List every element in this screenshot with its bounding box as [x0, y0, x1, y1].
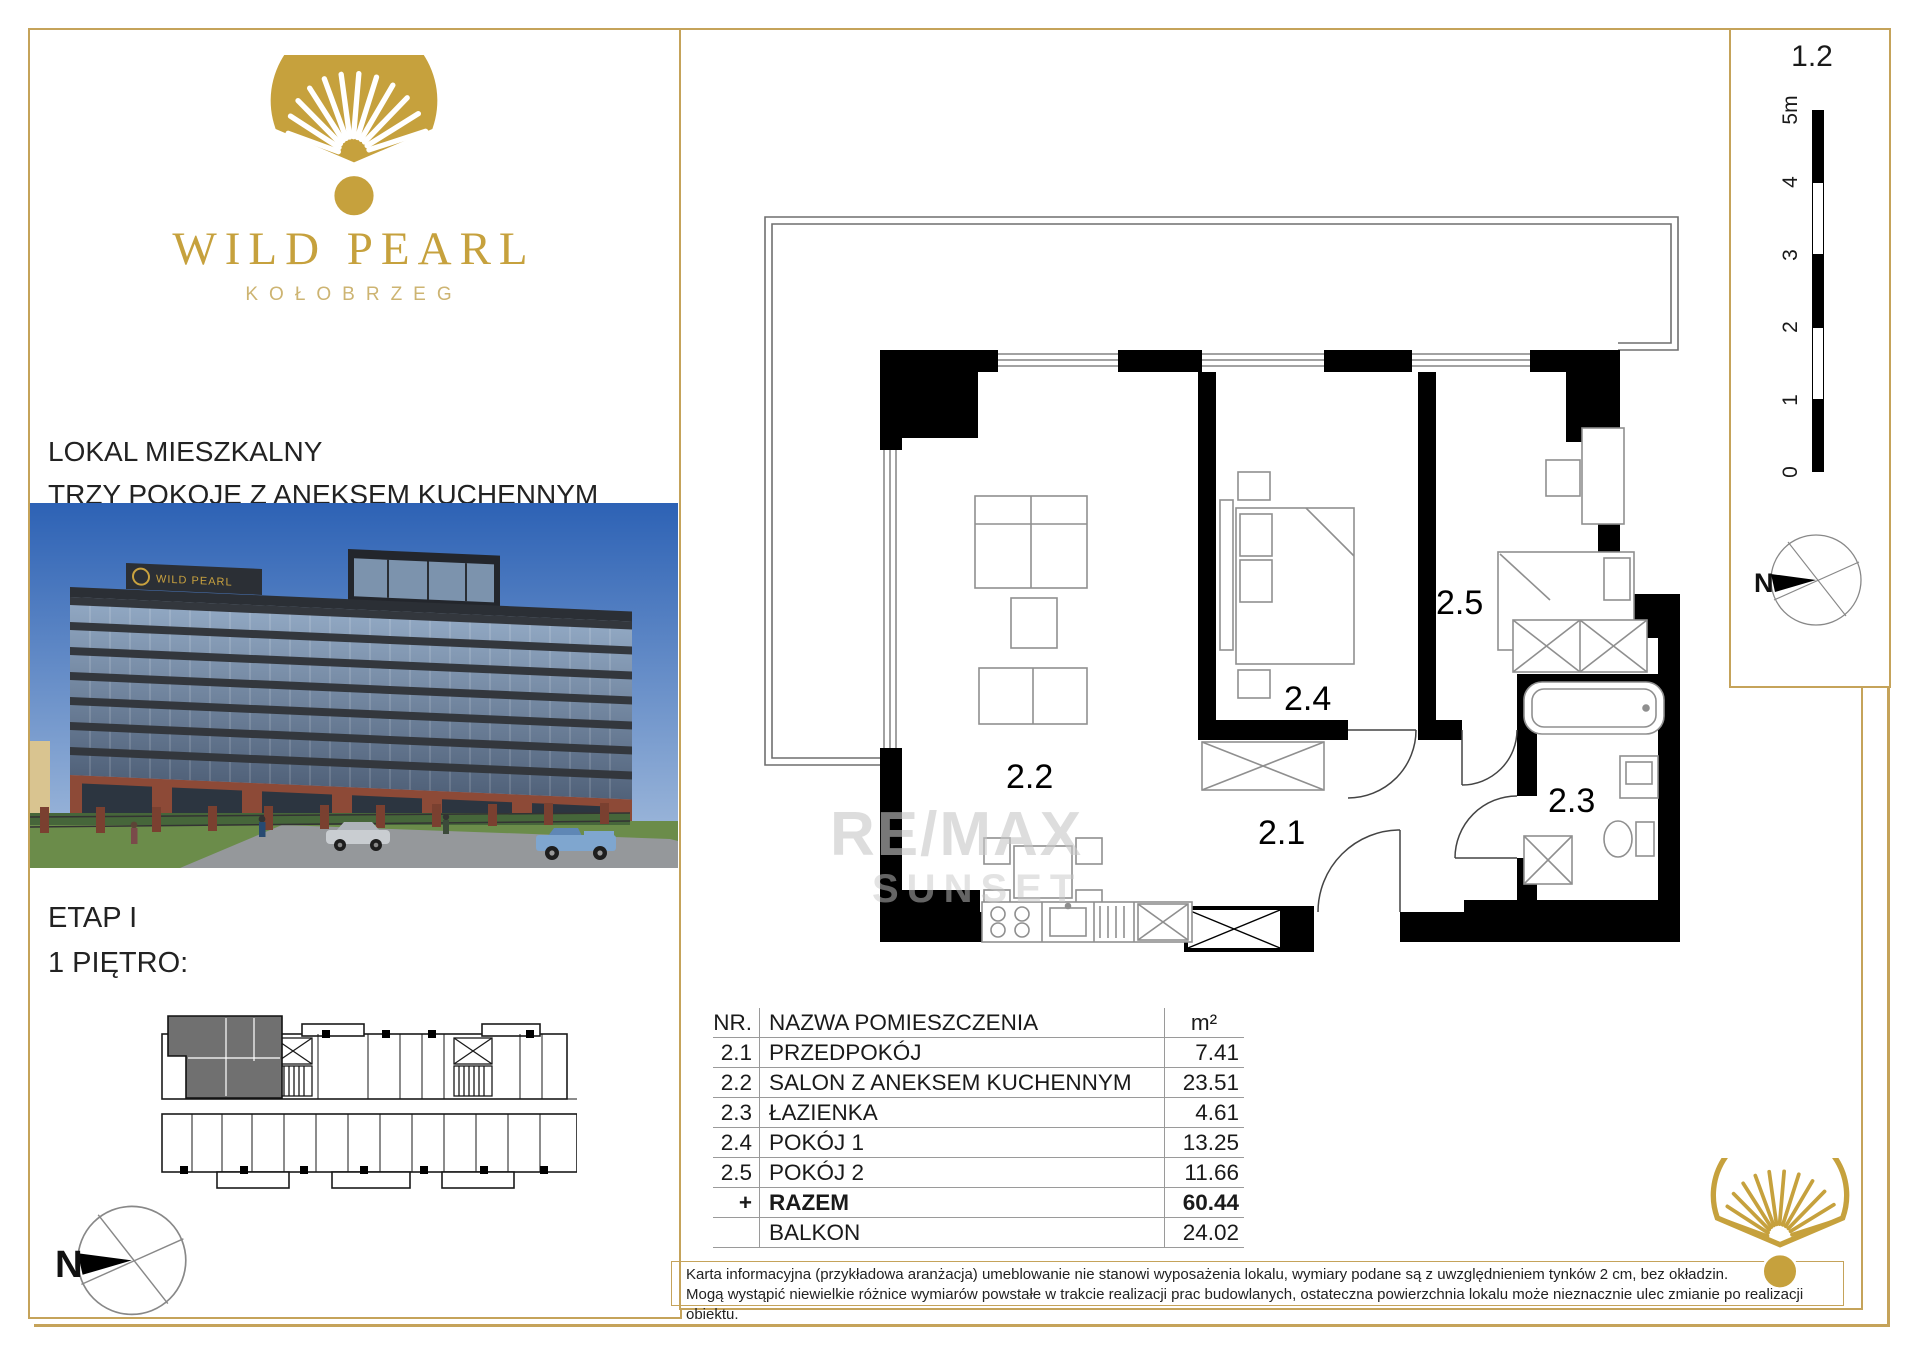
scale-segment — [1812, 255, 1824, 327]
scale-tick-label: 0 — [1779, 453, 1803, 491]
scale-segment — [1812, 182, 1824, 254]
watermark: RE/MAX SUNSET — [830, 800, 1083, 911]
property-type-line1: LOKAL MIESZKALNY — [48, 430, 598, 473]
plan-compass-north-label: N — [1754, 568, 1774, 598]
table-row: 2.4POKÓJ 113.25 — [713, 1128, 1244, 1158]
building-photo: WILD PEARL — [30, 503, 678, 868]
disclaimer-box: Karta informacyjna (przykładowa aranżacj… — [671, 1261, 1844, 1306]
table-cell: 2.4 — [713, 1130, 759, 1156]
plan-compass-icon: N — [1752, 528, 1872, 638]
floor-label: 1 PIĘTRO: — [48, 941, 188, 986]
table-cell: + — [713, 1190, 759, 1216]
compass-north-label: N — [55, 1243, 83, 1286]
watermark-line1: RE/MAX — [830, 800, 1083, 869]
room-label-25: 2.5 — [1436, 584, 1483, 622]
table-cell: 2.1 — [713, 1040, 759, 1066]
scale-tick-label: 4 — [1779, 163, 1803, 201]
scale-tick-label: 1 — [1779, 381, 1803, 419]
scale-tick-label: 3 — [1779, 236, 1803, 274]
brand-title: WILD PEARL — [28, 222, 680, 276]
table-cell: BALKON — [759, 1218, 1165, 1247]
table-row: 2.2SALON Z ANEKSEM KUCHENNYM23.51 — [713, 1068, 1244, 1098]
table-row: 2.5POKÓJ 211.66 — [713, 1158, 1244, 1188]
scale-segment — [1812, 400, 1824, 472]
scale-ticks: 5m43210 — [1772, 110, 1812, 472]
floor-plan: RE/MAX SUNSET 2.2 2.4 2.5 2.1 2.3 — [760, 200, 1700, 960]
property-card-page: WILD PEARL KOŁOBRZEG LOKAL MIESZKALNY TR… — [0, 0, 1920, 1357]
key-plan — [122, 1006, 577, 1198]
room-label-21: 2.1 — [1258, 814, 1305, 852]
scale-bar — [1812, 110, 1824, 472]
table-cell: ŁAZIENKA — [759, 1098, 1165, 1127]
table-cell: m² — [1165, 1010, 1243, 1036]
table-cell: 60.44 — [1165, 1190, 1243, 1216]
table-row: 2.1PRZEDPOKÓJ7.41 — [713, 1038, 1244, 1068]
disclaimer-line1: Karta informacyjna (przykładowa aranżacj… — [686, 1265, 1843, 1285]
disclaimer-line2: Mogą wystąpić niewielkie różnice wymiaró… — [686, 1285, 1843, 1325]
table-cell: 13.25 — [1165, 1130, 1243, 1156]
table-row: NR.NAZWA POMIESZCZENIAm² — [713, 1008, 1244, 1038]
table-cell: SALON Z ANEKSEM KUCHENNYM — [759, 1068, 1165, 1097]
table-cell: RAZEM — [759, 1188, 1165, 1217]
room-label-24: 2.4 — [1284, 680, 1331, 718]
scale-segment — [1812, 110, 1824, 182]
table-cell: 2.2 — [713, 1070, 759, 1096]
table-row: BALKON24.02 — [713, 1218, 1244, 1248]
scale-segment — [1812, 327, 1824, 399]
shell-logo-icon — [254, 55, 454, 223]
table-row: +RAZEM60.44 — [713, 1188, 1244, 1218]
watermark-line2: SUNSET — [872, 867, 1082, 911]
table-cell: 11.66 — [1165, 1160, 1243, 1186]
scale-tick-label: 5m — [1779, 91, 1803, 129]
room-table: NR.NAZWA POMIESZCZENIAm²2.1PRZEDPOKÓJ7.4… — [713, 1008, 1244, 1248]
table-cell: 2.5 — [713, 1160, 759, 1186]
table-cell: POKÓJ 1 — [759, 1128, 1165, 1157]
shaft-box — [1184, 906, 1284, 952]
plan-number: 1.2 — [1770, 40, 1854, 74]
room-label-22: 2.2 — [1006, 758, 1053, 796]
compass-icon: N — [52, 1198, 202, 1330]
stage-label: ETAP I — [48, 896, 188, 941]
table-cell: 2.3 — [713, 1100, 759, 1126]
table-cell: 23.51 — [1165, 1070, 1243, 1096]
doors — [1318, 730, 1517, 912]
table-cell: PRZEDPOKÓJ — [759, 1038, 1165, 1067]
table-row: 2.3ŁAZIENKA4.61 — [713, 1098, 1244, 1128]
stage-block: ETAP I 1 PIĘTRO: — [48, 896, 188, 986]
table-cell: 4.61 — [1165, 1100, 1243, 1126]
table-cell: NAZWA POMIESZCZENIA — [759, 1008, 1165, 1037]
table-cell: 24.02 — [1165, 1220, 1243, 1246]
brand-city: KOŁOBRZEG — [28, 284, 680, 306]
table-cell: NR. — [713, 1010, 759, 1036]
table-cell: 7.41 — [1165, 1040, 1243, 1066]
room-label-23: 2.3 — [1548, 782, 1595, 820]
shell-outline-icon — [1700, 1158, 1860, 1294]
table-cell: POKÓJ 2 — [759, 1158, 1165, 1187]
scale-tick-label: 2 — [1779, 308, 1803, 346]
